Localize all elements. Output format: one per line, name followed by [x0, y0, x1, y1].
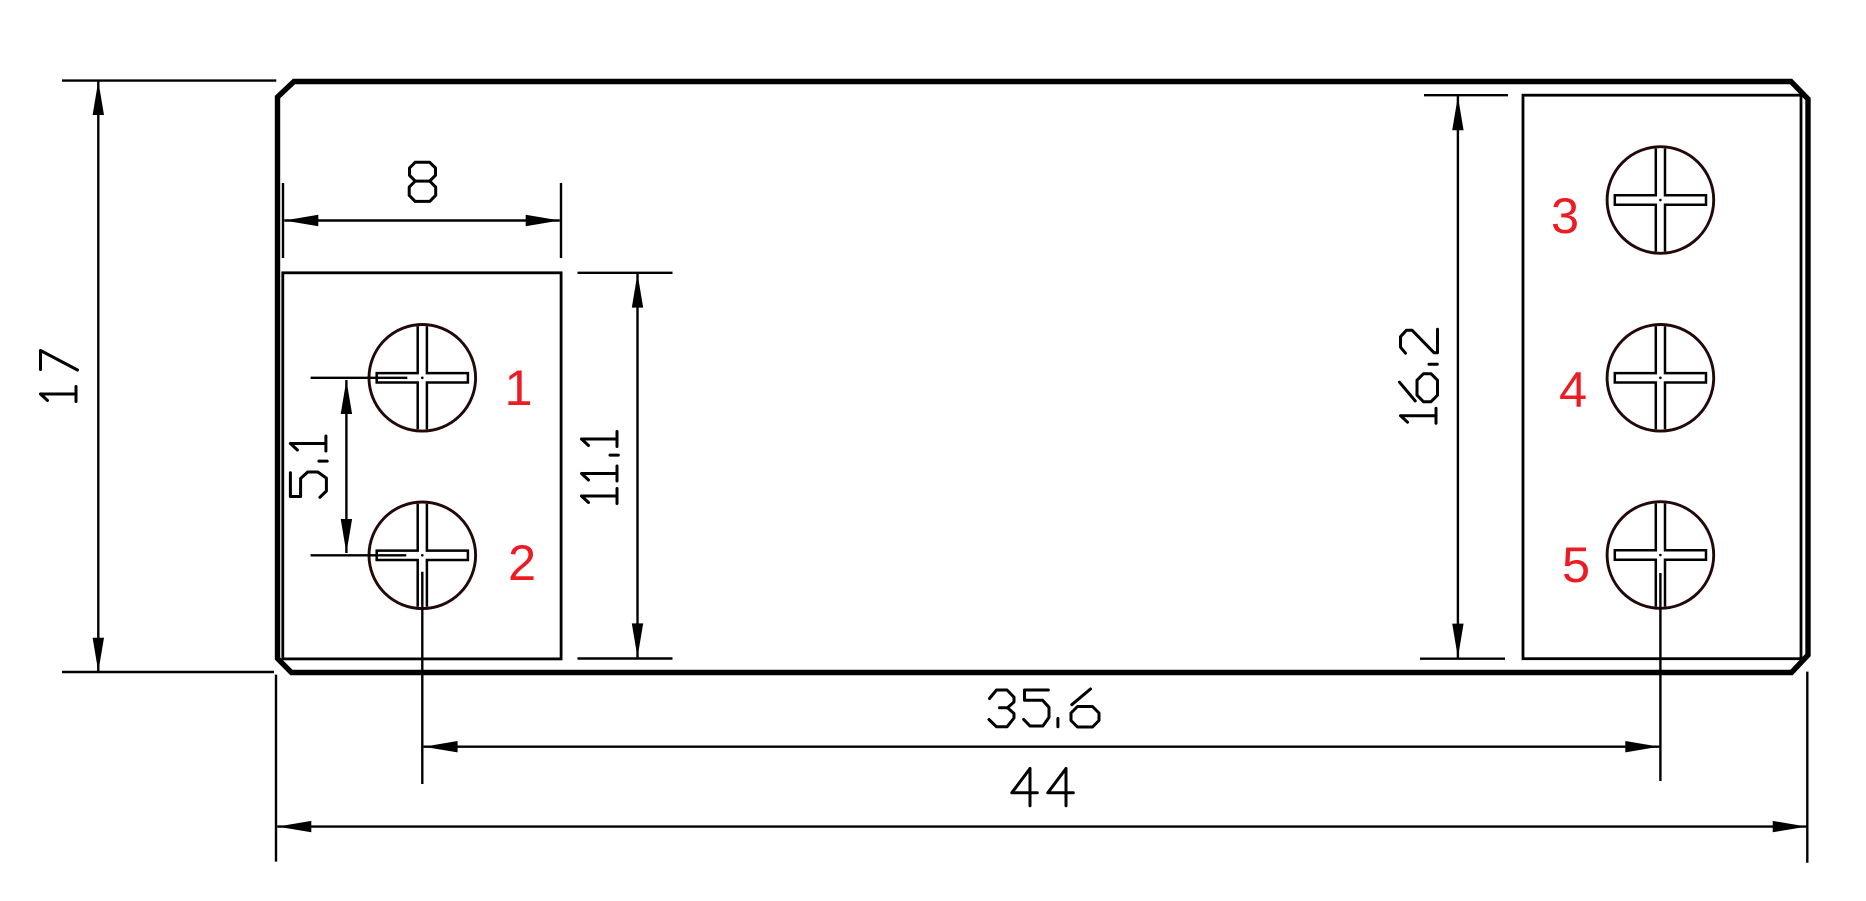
svg-text:2: 2	[508, 534, 536, 591]
svg-text:5: 5	[1562, 536, 1590, 593]
svg-text:4: 4	[1559, 361, 1587, 418]
svg-text:3: 3	[1551, 187, 1579, 244]
svg-text:1: 1	[504, 359, 532, 416]
